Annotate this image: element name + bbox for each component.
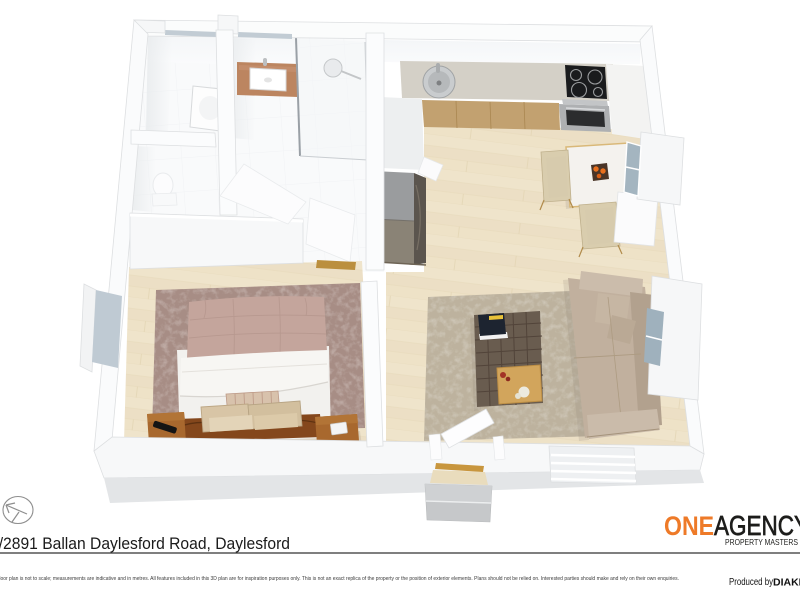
svg-text:7/2891 Ballan Daylesford Road,: 7/2891 Ballan Daylesford Road, Daylesfor…	[0, 535, 290, 553]
svg-text:floor plan is not to scale; me: floor plan is not to scale; measurements…	[0, 576, 679, 582]
svg-text:Produced by: Produced by	[729, 577, 773, 588]
svg-text:DIAKRIT: DIAKRIT	[773, 577, 800, 589]
svg-text:PROPERTY MASTERS: PROPERTY MASTERS	[725, 537, 798, 547]
svg-text:ONE: ONE	[664, 511, 714, 541]
